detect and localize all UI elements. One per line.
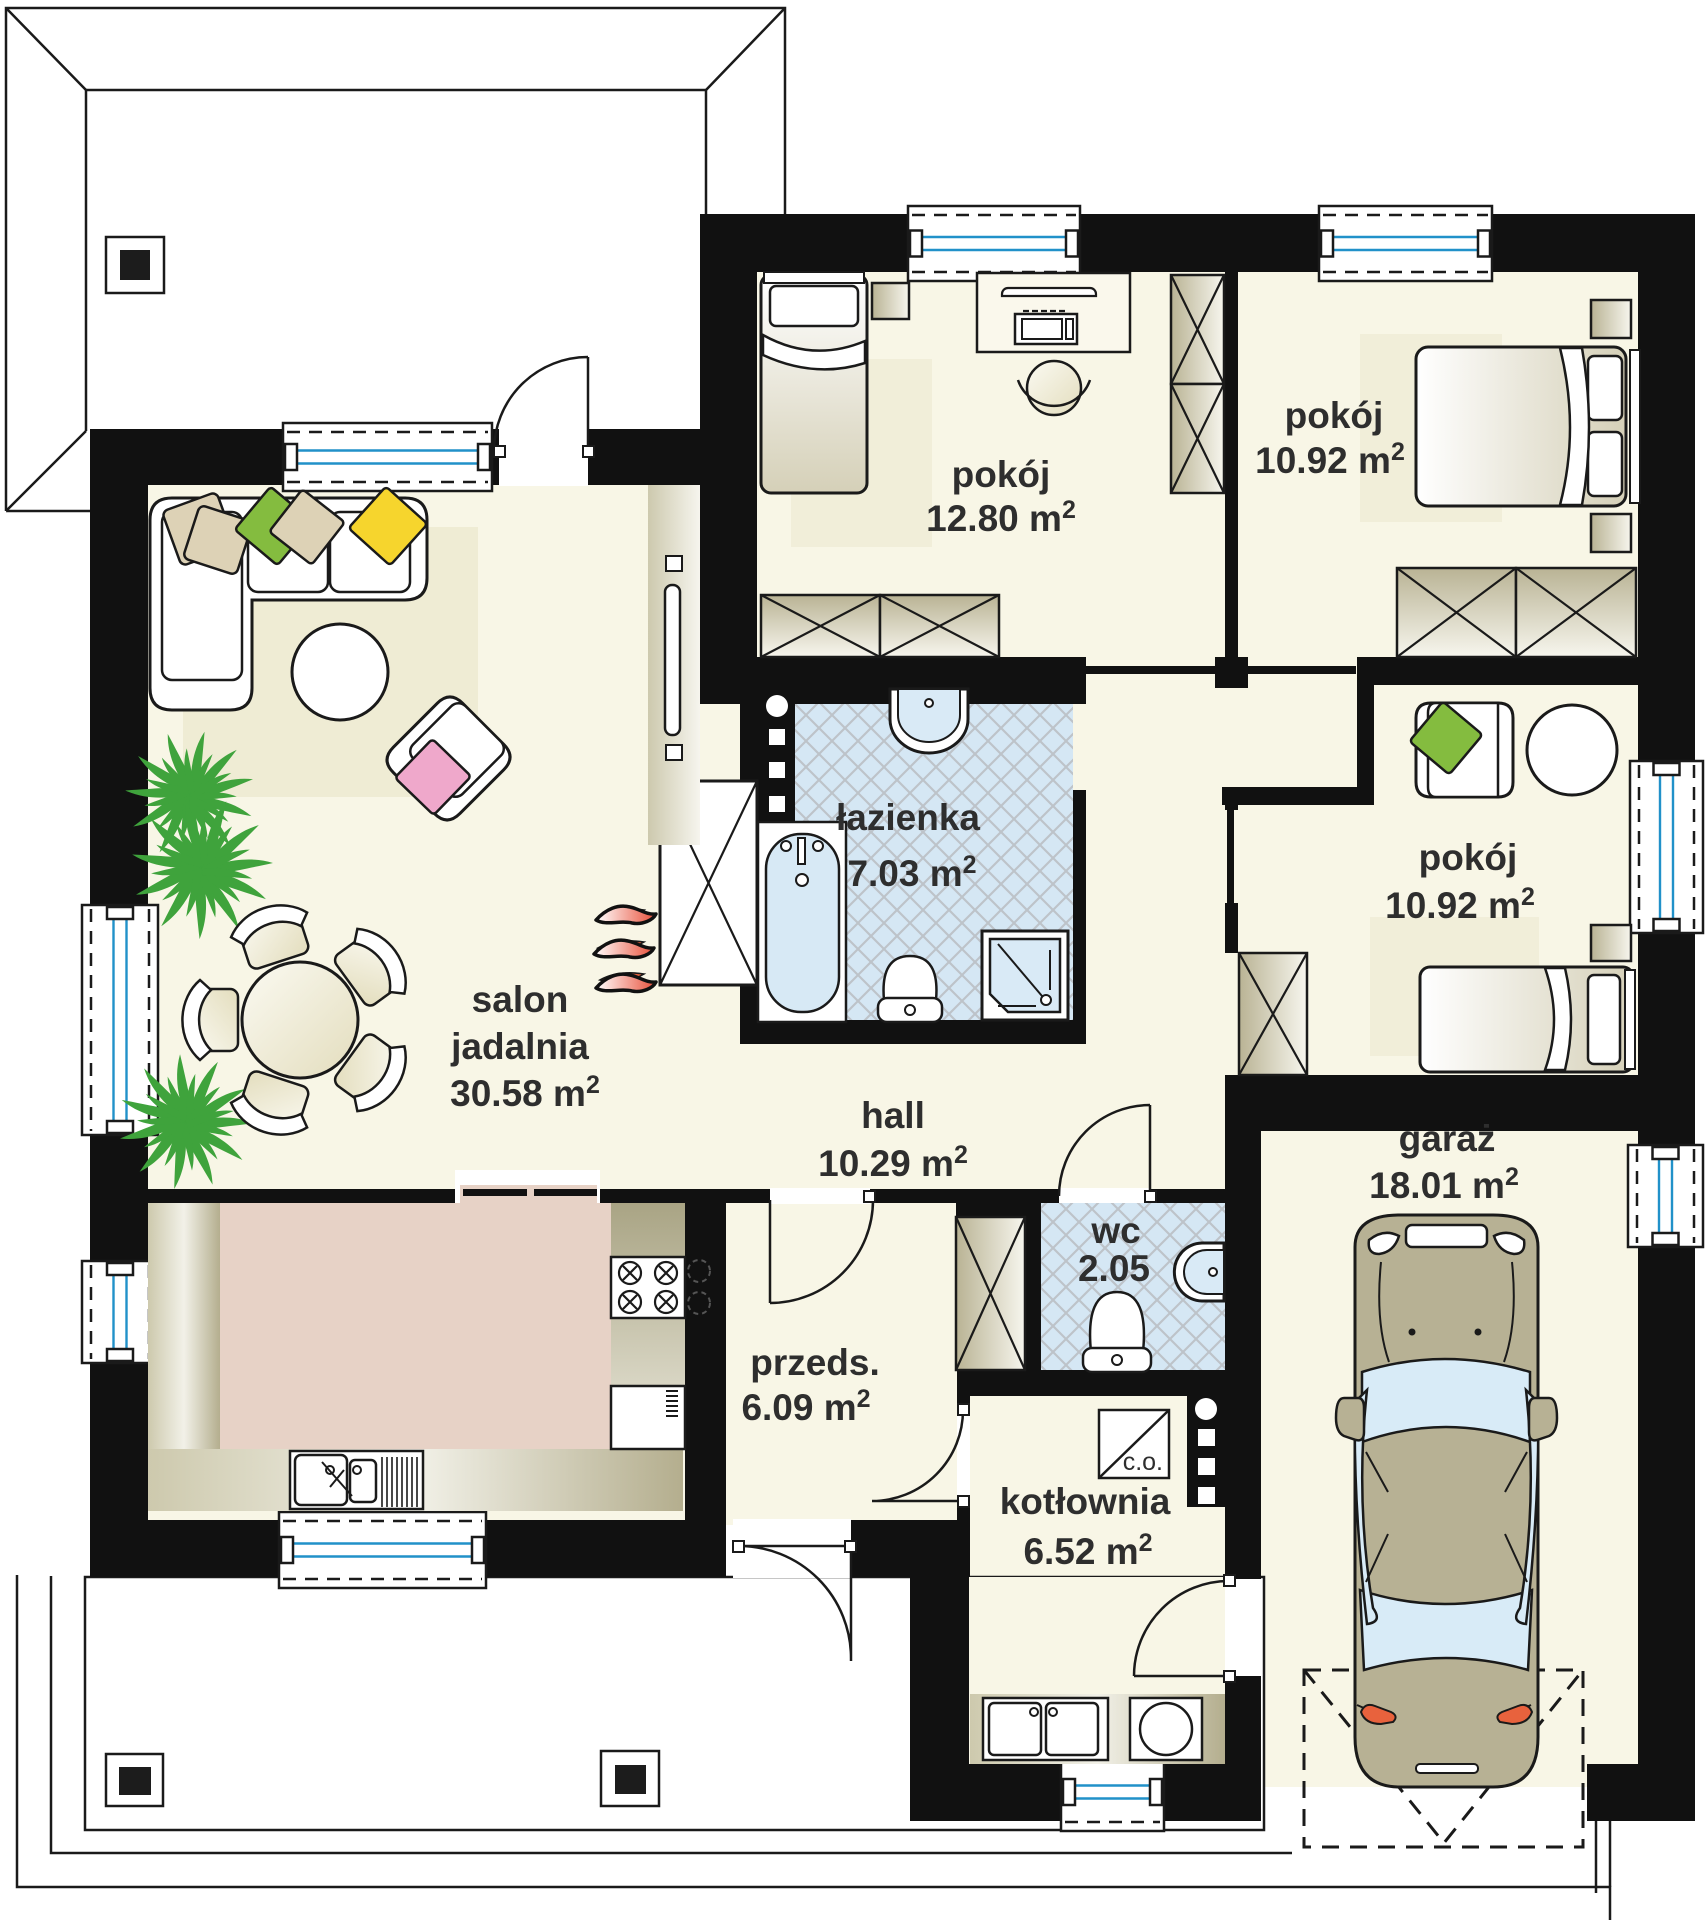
svg-text:c.o.: c.o. [1123,1448,1163,1476]
svg-text:wc: wc [1090,1210,1140,1251]
svg-text:salon: salon [472,979,569,1020]
svg-text:30.58 m2: 30.58 m2 [450,1071,600,1114]
svg-text:6.09 m2: 6.09 m2 [741,1385,870,1428]
svg-text:jadalnia: jadalnia [450,1026,589,1067]
svg-text:7.03 m2: 7.03 m2 [847,851,976,894]
svg-text:przeds.: przeds. [750,1342,880,1383]
svg-text:10.92 m2: 10.92 m2 [1385,883,1535,926]
svg-text:12.80 m2: 12.80 m2 [926,496,1076,539]
svg-text:łazienka: łazienka [836,797,980,838]
svg-text:18.01 m2: 18.01 m2 [1369,1163,1519,1206]
svg-text:pokój: pokój [952,454,1051,495]
svg-text:6.52 m2: 6.52 m2 [1023,1529,1152,1572]
svg-text:pokój: pokój [1419,837,1518,878]
svg-text:kotłownia: kotłownia [1000,1481,1171,1522]
svg-text:10.29 m2: 10.29 m2 [818,1141,968,1184]
svg-text:10.92 m2: 10.92 m2 [1255,438,1405,481]
svg-text:2.05: 2.05 [1078,1248,1150,1289]
svg-text:pokój: pokój [1285,395,1384,436]
svg-text:hall: hall [861,1095,925,1136]
svg-text:garaż: garaż [1399,1118,1496,1159]
